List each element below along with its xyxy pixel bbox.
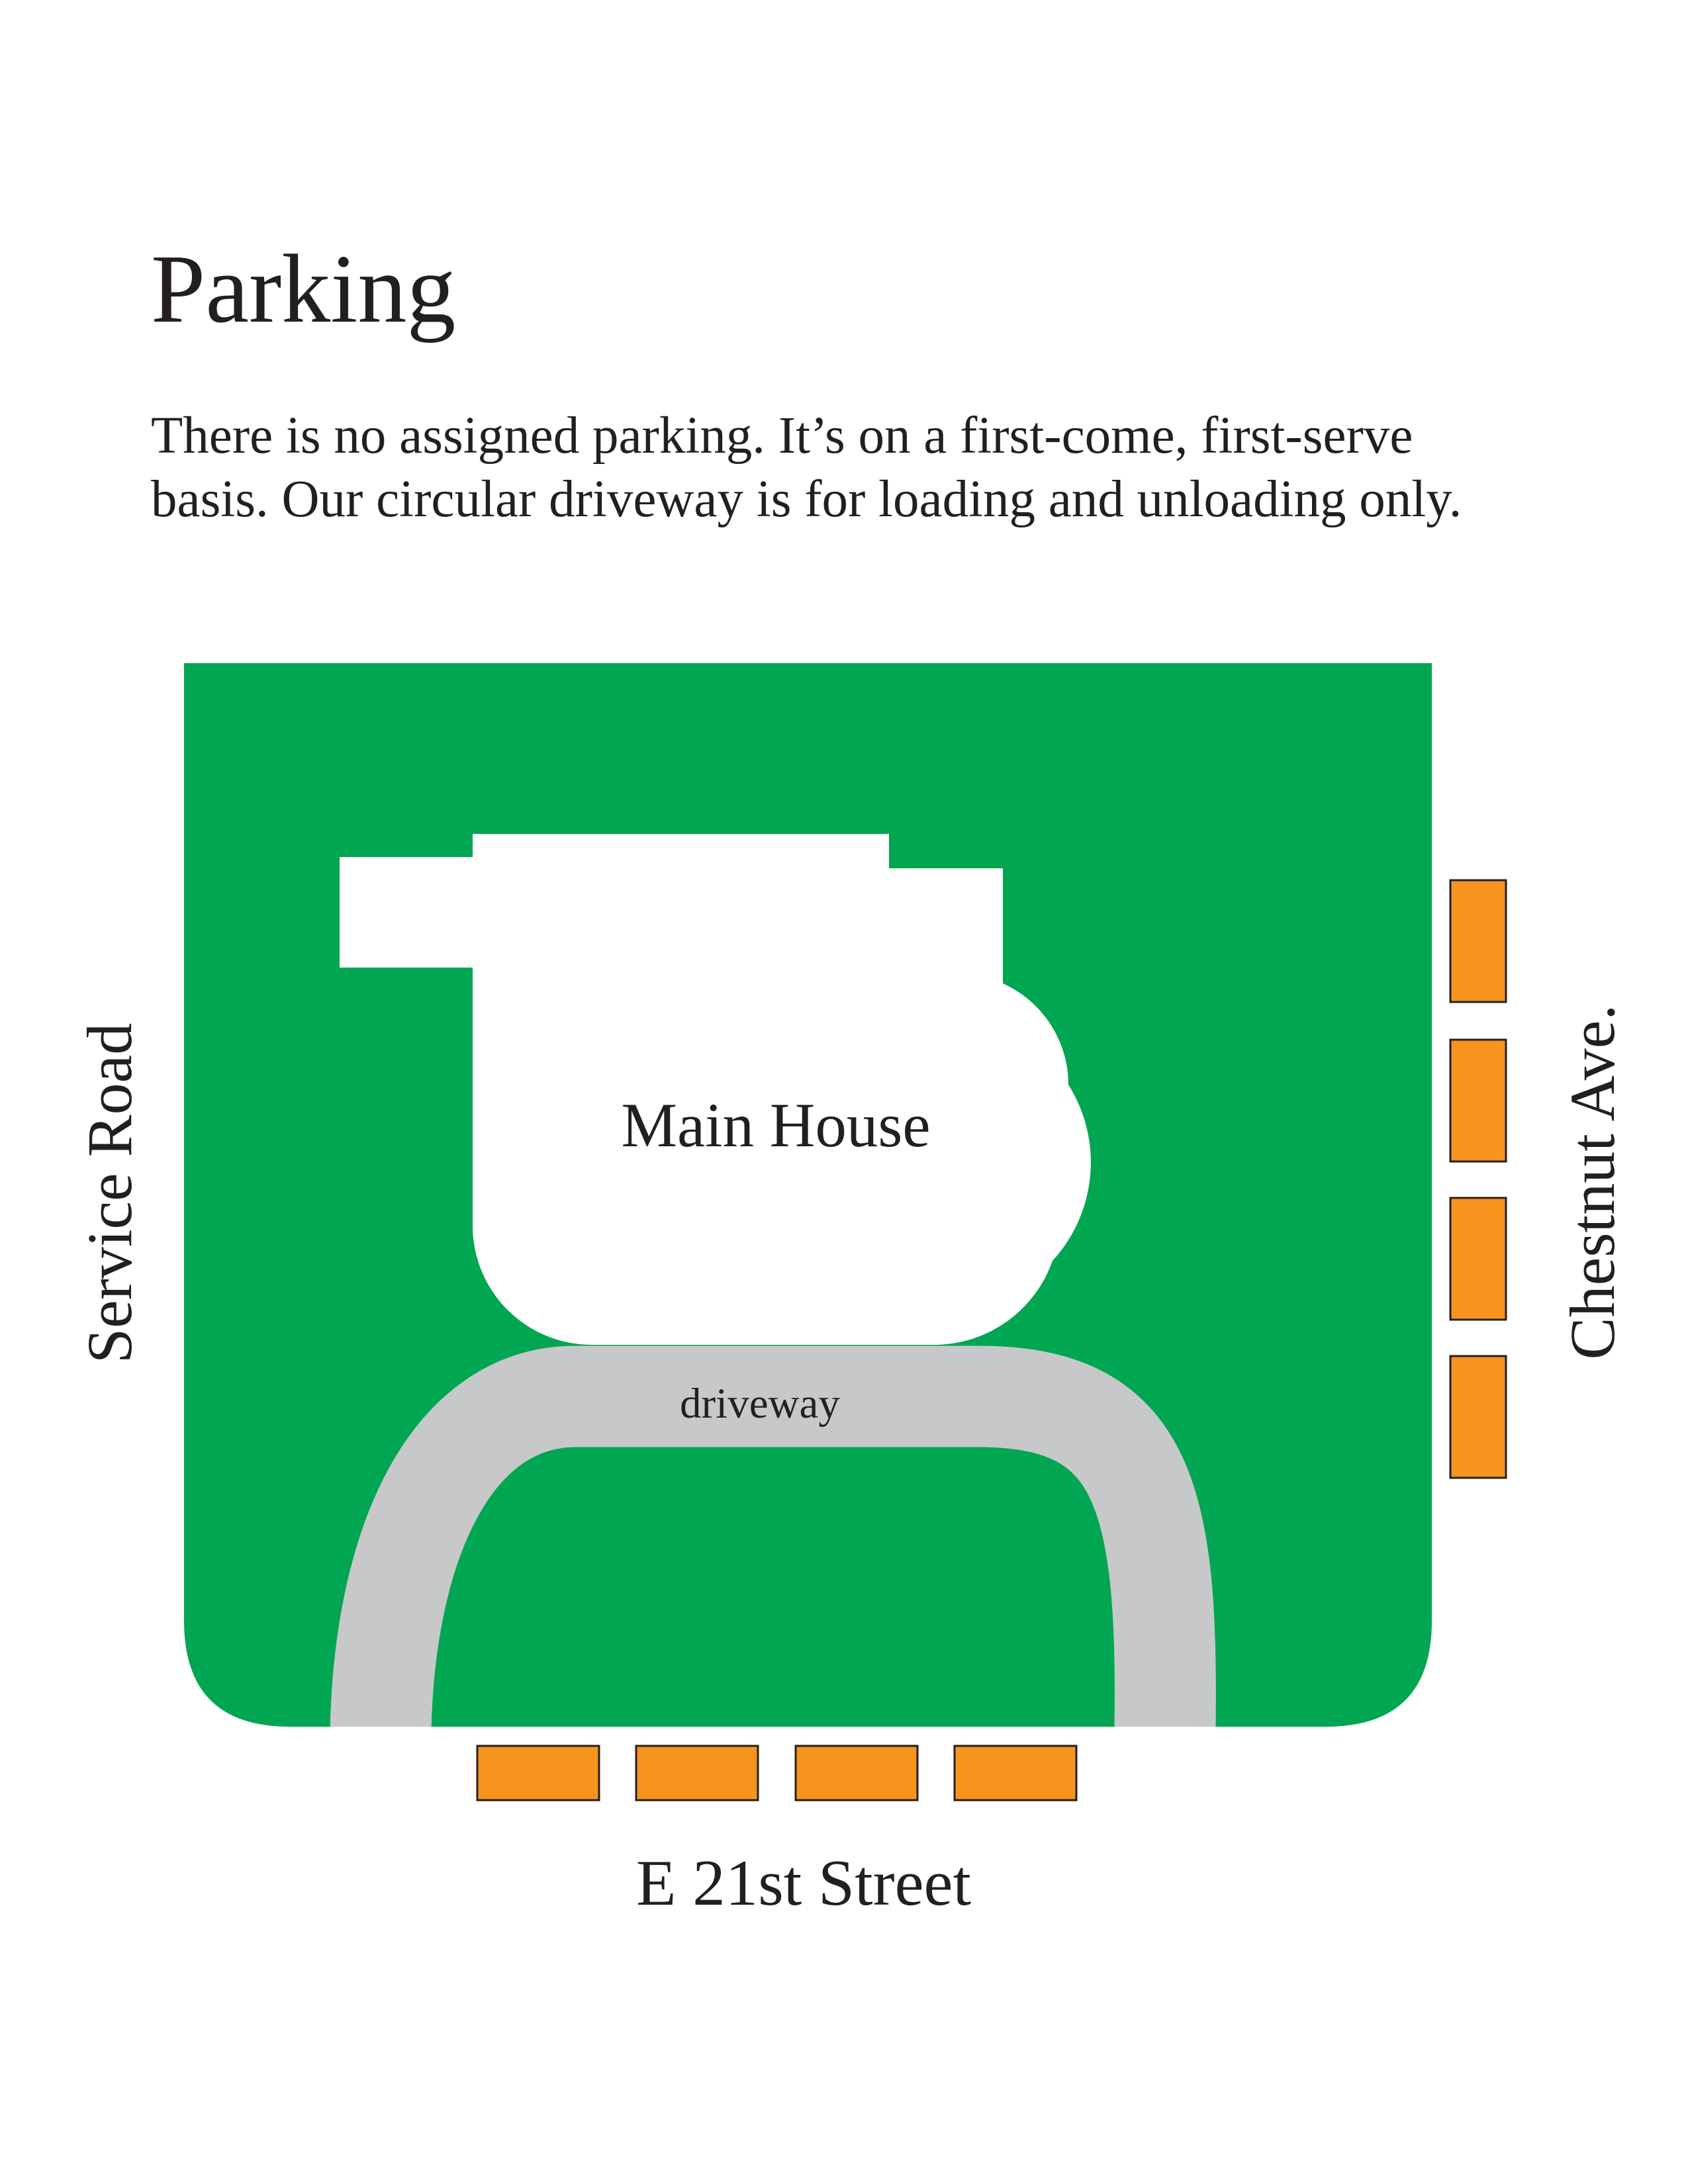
svg-text:driveway: driveway [680,1380,840,1428]
svg-text:There is no assigned parking.: There is no assigned parking. It’s on a … [151,407,1413,465]
svg-text:Chestnut Ave.: Chestnut Ave. [1557,1005,1628,1360]
svg-text:Main House: Main House [621,1090,930,1160]
svg-text:E 21st Street: E 21st Street [636,1847,971,1919]
svg-text:Parking: Parking [151,235,455,343]
svg-text:Service Road: Service Road [74,1023,145,1364]
svg-text:basis. Our circular driveway i: basis. Our circular driveway is for load… [151,471,1462,528]
